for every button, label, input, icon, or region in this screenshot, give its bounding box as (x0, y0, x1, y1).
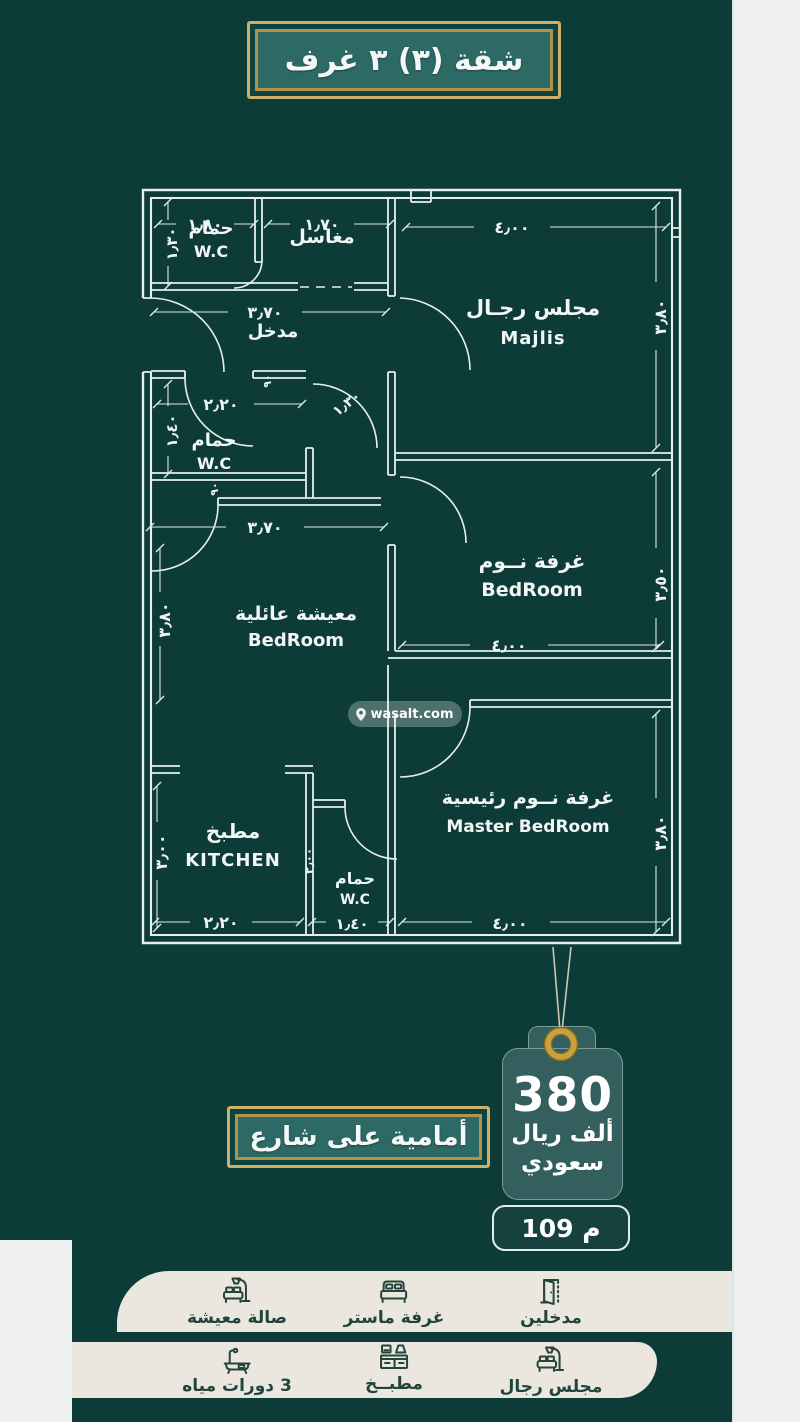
feature-bathrooms: 3 دورات مياه (182, 1344, 292, 1395)
price-tag: 380 ألف ريال سعودي (502, 1048, 623, 1200)
feature-entrances: مدخلين (520, 1273, 582, 1327)
door-icon (533, 1273, 569, 1309)
area-value: 109 م (521, 1214, 600, 1243)
price-amount: 380 (512, 1071, 613, 1120)
page-margin-bottom-left (0, 1240, 72, 1422)
sofa-lamp-icon (219, 1275, 255, 1309)
watermark-pill: wasalt.com (348, 701, 462, 727)
area-badge: 109 م (492, 1205, 630, 1251)
page-title: شقة (٣) ٣ غرف (285, 43, 524, 78)
price-currency-line2: سعودي (521, 1149, 604, 1178)
feature-living-room: صالة معيشة (187, 1275, 287, 1327)
feature-majlis: مجلس رجال (500, 1344, 603, 1396)
feature-label: مطبــخ (365, 1376, 423, 1393)
flyer-canvas: شقة (٣) ٣ غرف أمامية على شارع 380 ألف ري… (0, 0, 800, 1422)
watermark-text: wasalt.com (370, 707, 453, 722)
feature-label: صالة معيشة (187, 1310, 287, 1327)
feature-master-room: غرفة ماستر (344, 1274, 445, 1327)
feature-label: مدخلين (520, 1310, 582, 1327)
feature-label: 3 دورات مياه (182, 1378, 292, 1395)
bed-icon (376, 1274, 412, 1309)
location-pin-icon (356, 708, 366, 721)
bathtub-icon (219, 1344, 255, 1377)
header-frame: شقة (٣) ٣ غرف (247, 21, 561, 99)
feature-kitchen: مطبــخ (365, 1341, 423, 1393)
feature-label: مجلس رجال (500, 1379, 603, 1396)
price-currency-line1: ألف ريال (511, 1120, 613, 1149)
street-banner-label: أمامية على شارع (249, 1122, 467, 1152)
sofa-lamp-icon (533, 1344, 569, 1378)
kitchen-icon (376, 1341, 412, 1375)
feature-label: غرفة ماستر (344, 1310, 445, 1327)
street-banner-frame: أمامية على شارع (227, 1106, 490, 1168)
page-margin-right (732, 0, 800, 1422)
